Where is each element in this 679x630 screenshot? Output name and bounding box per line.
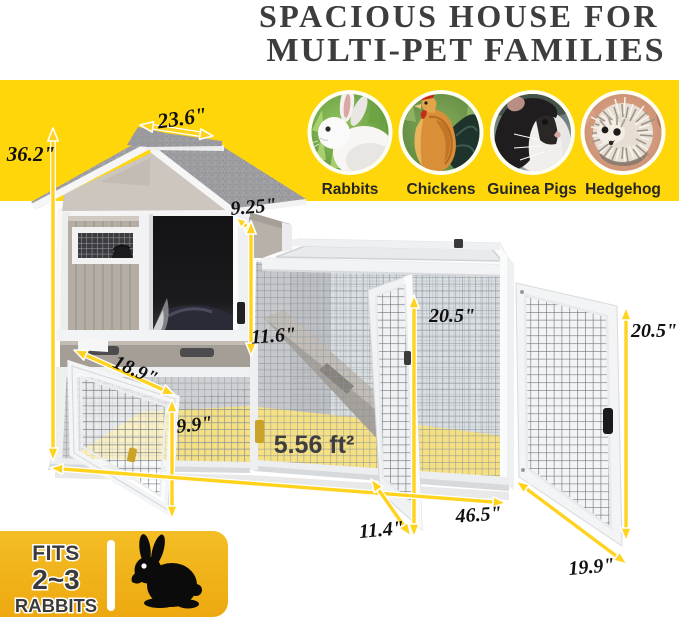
svg-text:FITS: FITS (32, 542, 80, 565)
svg-text:SPACIOUS HOUSE FOR: SPACIOUS HOUSE FOR (259, 0, 659, 34)
svg-text:Hedgehog: Hedgehog (585, 181, 661, 198)
svg-text:9.9": 9.9" (175, 412, 213, 438)
svg-text:20.5": 20.5" (630, 320, 677, 342)
svg-text:2~3: 2~3 (32, 564, 80, 595)
svg-text:11.6": 11.6" (250, 323, 296, 348)
svg-text:46.5": 46.5" (454, 502, 503, 527)
svg-text:20.5": 20.5" (428, 305, 475, 327)
svg-text:Rabbits: Rabbits (322, 181, 379, 198)
svg-text:Chickens: Chickens (407, 181, 476, 198)
svg-text:MULTI-PET FAMILIES: MULTI-PET FAMILIES (266, 32, 665, 69)
svg-text:Guinea Pigs: Guinea Pigs (487, 181, 577, 198)
svg-text:19.9": 19.9" (568, 554, 616, 580)
svg-text:11.4": 11.4" (358, 517, 405, 543)
svg-text:36.2": 36.2" (6, 142, 55, 166)
svg-text:9.25": 9.25" (230, 194, 278, 220)
svg-text:5.56 ft²: 5.56 ft² (274, 431, 355, 459)
svg-text:RABBITS: RABBITS (15, 595, 97, 616)
